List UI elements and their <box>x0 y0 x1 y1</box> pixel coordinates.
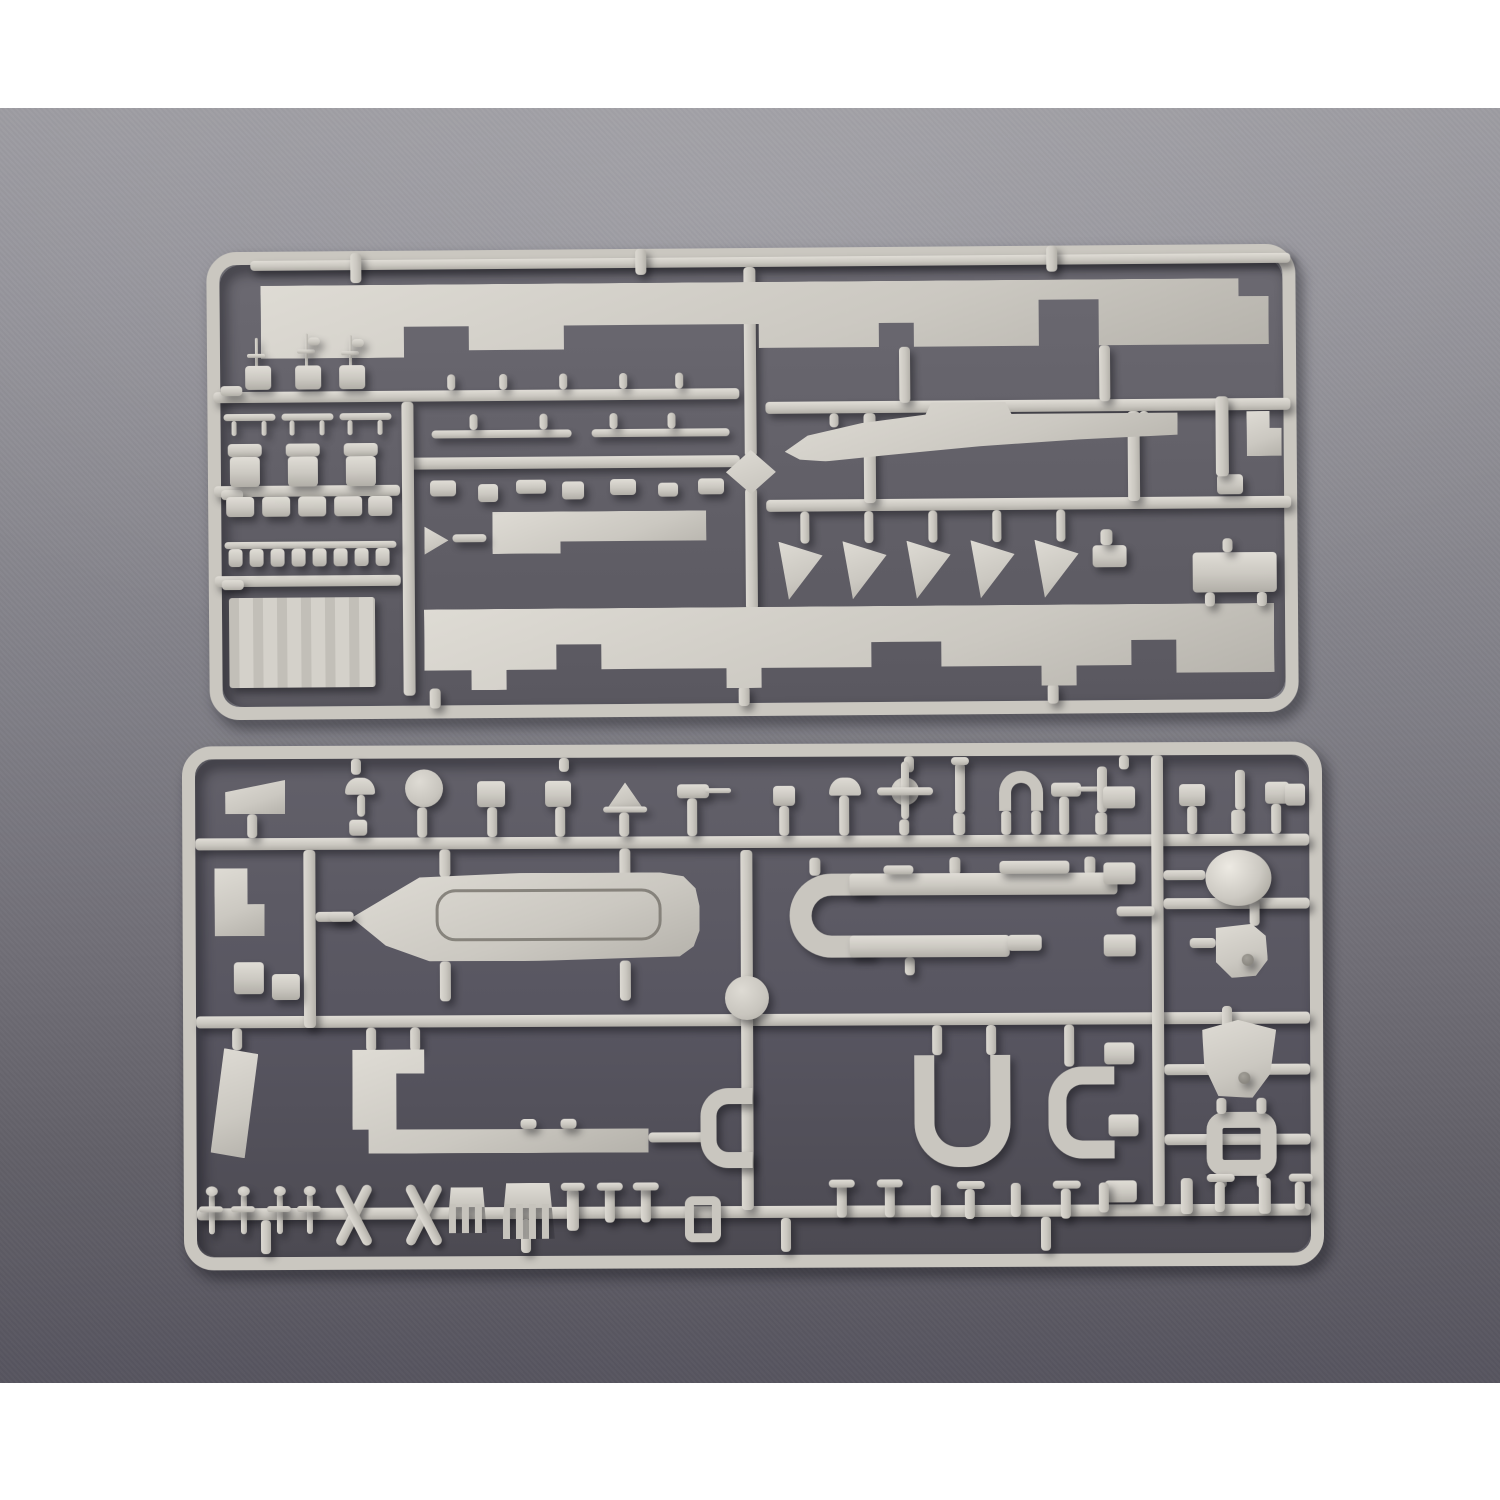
runner-bar <box>1104 1042 1134 1064</box>
runner-bar <box>1163 870 1205 880</box>
runner-bar <box>905 957 915 975</box>
runner-bar <box>1117 906 1155 916</box>
runner-bar <box>247 814 257 838</box>
runner-bar <box>931 1185 941 1217</box>
runner-bar <box>561 1183 585 1191</box>
runner-bar <box>877 787 933 795</box>
runner-bar <box>199 1206 223 1212</box>
comb-part <box>501 1183 555 1239</box>
runner-bar <box>999 861 1069 874</box>
runner-bar <box>773 786 795 806</box>
runner-bar <box>1216 1098 1226 1114</box>
runner-bar <box>1061 1189 1071 1219</box>
runner-bar <box>560 1119 576 1129</box>
runner-bar <box>1031 811 1041 835</box>
runner-bar <box>1179 784 1205 806</box>
runner-bar <box>1271 804 1281 834</box>
runner-bar <box>366 1028 376 1052</box>
dome-part <box>1205 850 1271 906</box>
sprue-lower <box>0 0 1500 1500</box>
runner-bar <box>410 1027 420 1051</box>
runner-bar <box>1289 1174 1313 1182</box>
comb-teeth <box>503 1204 553 1239</box>
sleeve-part <box>685 1196 721 1242</box>
runner-bar <box>1001 811 1011 835</box>
runner-bar <box>1099 1182 1109 1212</box>
comb-teeth <box>448 1205 485 1234</box>
runner-bar <box>837 1184 847 1218</box>
runner-bar <box>649 1132 705 1142</box>
molding-gate-pad <box>725 976 769 1020</box>
runner-bar <box>1151 755 1165 1206</box>
runner-bar <box>953 813 965 835</box>
runner-bar <box>850 935 1010 958</box>
runner-bar <box>633 1182 659 1190</box>
runner-bar <box>1256 1098 1266 1114</box>
runner-bar <box>1187 806 1197 834</box>
runner-bar <box>1041 1217 1051 1251</box>
runner-bar <box>357 795 365 817</box>
runner-bar <box>234 962 264 994</box>
runner-bar <box>417 807 427 837</box>
runner-bar <box>1059 797 1069 835</box>
runner-bar <box>209 1194 215 1234</box>
runner-bar <box>267 1206 291 1212</box>
runner-bar <box>1008 935 1042 951</box>
runner-bar <box>705 788 731 793</box>
disc-part <box>304 1186 316 1196</box>
runner-bar <box>440 961 451 1001</box>
disc-part <box>1242 954 1254 966</box>
runner-bar <box>641 1186 651 1222</box>
runner-bar <box>1215 1182 1225 1212</box>
runner-bar <box>520 1119 536 1129</box>
runner-bar <box>231 1206 255 1212</box>
scissor-part <box>331 1186 377 1246</box>
runner-bar <box>487 807 497 837</box>
runner-bar <box>779 806 789 836</box>
runner-bar <box>439 849 450 877</box>
runner-bar <box>1207 1174 1235 1182</box>
disc-part <box>274 1186 286 1196</box>
runner-bar <box>1181 1178 1193 1214</box>
runner-bar <box>781 1218 791 1252</box>
runner-bar <box>597 1183 623 1191</box>
runner-bar <box>986 1025 996 1055</box>
disc-part <box>1238 1072 1250 1084</box>
runner-bar <box>1105 1180 1137 1202</box>
curved-part <box>1048 1066 1114 1158</box>
disc-part <box>238 1186 250 1196</box>
runner-bar <box>1103 786 1135 808</box>
runner-bar <box>559 758 569 772</box>
runner-bar <box>1231 810 1245 834</box>
runner-bar <box>955 763 965 813</box>
j-duct-part <box>914 1055 1010 1167</box>
runner-bar <box>1064 1025 1074 1067</box>
runner-bar <box>272 974 300 1000</box>
runner-bar <box>545 781 571 807</box>
runner-bar <box>1104 934 1136 956</box>
runner-bar <box>885 1183 895 1217</box>
runner-bar <box>1103 862 1135 884</box>
runner-bar <box>477 781 505 807</box>
screenshot-root <box>0 0 1500 1500</box>
runner-bar <box>297 1206 321 1212</box>
runner-bar <box>883 865 913 874</box>
runner-bar <box>809 858 820 876</box>
runner-bar <box>1285 784 1305 806</box>
runner-bar <box>849 872 1117 895</box>
disc-part <box>405 769 443 807</box>
runner-bar <box>619 813 629 837</box>
runner-bar <box>951 757 969 765</box>
ring-part <box>435 888 661 941</box>
runner-bar <box>965 1189 975 1219</box>
runner-bar <box>1235 770 1245 810</box>
runner-bar <box>303 850 316 1028</box>
curved-part <box>700 1088 752 1168</box>
runner-bar <box>349 820 367 836</box>
runner-bar <box>241 1194 247 1234</box>
runner-bar <box>619 849 630 877</box>
runner-bar <box>261 1220 271 1254</box>
runner-bar <box>330 912 354 922</box>
runner-bar <box>567 1189 579 1231</box>
runner-bar <box>1259 1178 1271 1214</box>
runner-bar <box>877 1179 903 1187</box>
curved-part <box>999 771 1043 811</box>
white-margin-bottom <box>0 1383 1500 1500</box>
runner-bar <box>307 1194 313 1234</box>
runner-bar <box>932 1025 942 1055</box>
runner-bar <box>1295 1182 1305 1210</box>
runner-bar <box>1011 1183 1021 1217</box>
runner-bar <box>1190 938 1216 948</box>
runner-bar <box>687 798 697 836</box>
runner-bar <box>555 807 565 837</box>
runner-bar <box>351 759 361 775</box>
runner-bar <box>1053 1181 1081 1189</box>
runner-bar <box>620 961 631 1001</box>
runner-bar <box>232 1028 242 1050</box>
runner-bar <box>1095 812 1107 834</box>
scissor-part <box>401 1185 447 1245</box>
runner-bar <box>957 1181 985 1189</box>
fan-part <box>345 778 375 795</box>
runner-bar <box>605 1187 615 1223</box>
disc-part <box>206 1186 218 1196</box>
runner-bar <box>899 819 909 835</box>
runner-bar <box>829 1180 855 1188</box>
frame-ring-part <box>1206 1112 1276 1176</box>
runner-bar <box>1119 755 1129 769</box>
runner-bar <box>277 1194 283 1234</box>
comb-part <box>447 1187 487 1233</box>
runner-bar <box>839 796 849 836</box>
